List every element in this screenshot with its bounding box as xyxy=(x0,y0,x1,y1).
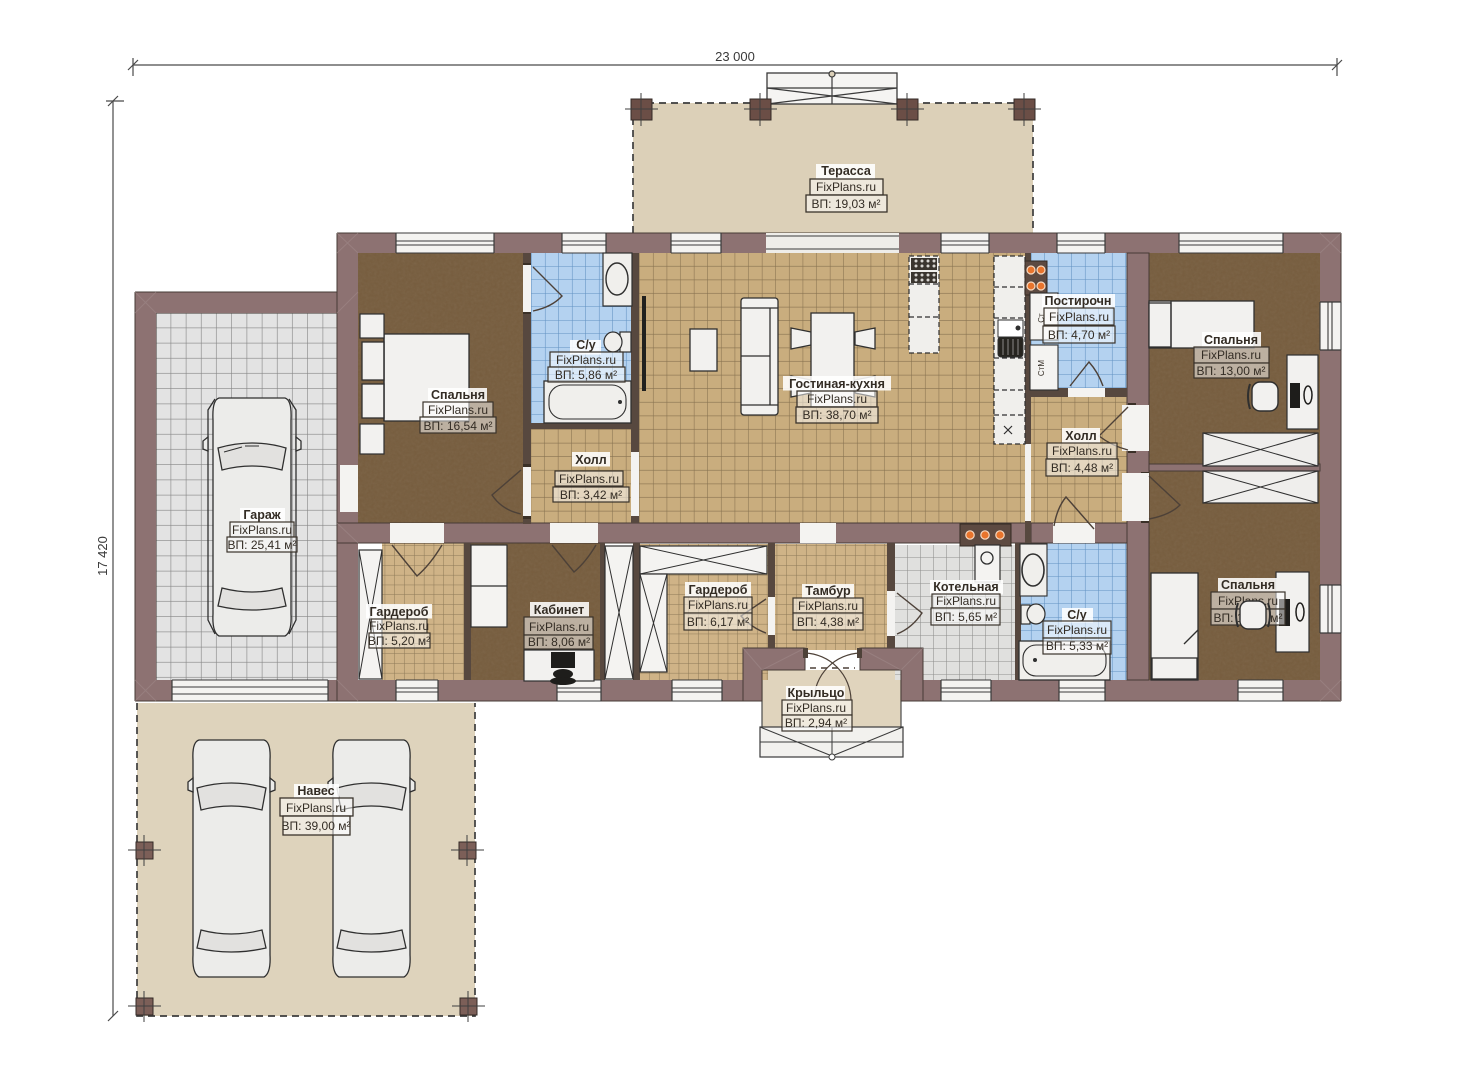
svg-text:ВП: 4,70 м²: ВП: 4,70 м² xyxy=(1048,328,1110,342)
svg-text:ВП: 38,70 м²: ВП: 38,70 м² xyxy=(803,408,872,422)
svg-text:ВП: 5,33 м²: ВП: 5,33 м² xyxy=(1046,639,1108,653)
svg-text:17 420: 17 420 xyxy=(95,536,110,576)
svg-text:ВП: 2,94 м²: ВП: 2,94 м² xyxy=(785,716,847,730)
svg-text:ВП: 8,06 м²: ВП: 8,06 м² xyxy=(528,635,590,649)
svg-text:С/у: С/у xyxy=(1067,608,1087,622)
svg-text:FixPlans.ru: FixPlans.ru xyxy=(807,392,867,406)
svg-text:Гараж: Гараж xyxy=(243,508,280,522)
svg-text:FixPlans.ru: FixPlans.ru xyxy=(556,353,616,367)
svg-text:FixPlans.ru: FixPlans.ru xyxy=(286,801,346,815)
svg-text:ВП: 3,42 м²: ВП: 3,42 м² xyxy=(560,488,622,502)
svg-text:Терасса: Терасса xyxy=(821,164,872,178)
svg-text:FixPlans.ru: FixPlans.ru xyxy=(786,701,846,715)
svg-text:FixPlans.ru: FixPlans.ru xyxy=(1047,623,1107,637)
svg-text:FixPlans.ru: FixPlans.ru xyxy=(1201,348,1261,362)
svg-text:Постирочн: Постирочн xyxy=(1045,294,1112,308)
svg-text:Тамбур: Тамбур xyxy=(805,584,851,598)
svg-text:Гардероб: Гардероб xyxy=(688,583,747,597)
svg-text:Кабинет: Кабинет xyxy=(534,603,585,617)
svg-text:FixPlans.ru: FixPlans.ru xyxy=(428,403,488,417)
svg-text:ВП: 5,20 м²: ВП: 5,20 м² xyxy=(368,634,430,648)
svg-text:ВП: 5,65 м²: ВП: 5,65 м² xyxy=(935,610,997,624)
svg-text:FixPlans.ru: FixPlans.ru xyxy=(816,180,876,194)
svg-text:FixPlans.ru: FixPlans.ru xyxy=(232,523,292,537)
svg-text:ВП: 4,48 м²: ВП: 4,48 м² xyxy=(1051,461,1113,475)
svg-text:FixPlans.ru: FixPlans.ru xyxy=(688,598,748,612)
svg-text:Гостиная-кухня: Гостиная-кухня xyxy=(789,377,885,391)
svg-text:FixPlans.ru: FixPlans.ru xyxy=(559,472,619,486)
svg-text:ВП: 19,03 м²: ВП: 19,03 м² xyxy=(812,197,881,211)
svg-text:FixPlans.ru: FixPlans.ru xyxy=(936,594,996,608)
svg-text:23 000: 23 000 xyxy=(715,49,755,64)
svg-text:FixPlans.ru: FixPlans.ru xyxy=(529,620,589,634)
svg-text:СтМ: СтМ xyxy=(1037,360,1046,376)
svg-text:ВП: 4,38 м²: ВП: 4,38 м² xyxy=(797,615,859,629)
svg-text:FixPlans.ru: FixPlans.ru xyxy=(1052,444,1112,458)
svg-text:Спальня: Спальня xyxy=(1221,578,1275,592)
svg-text:Гардероб: Гардероб xyxy=(369,605,428,619)
svg-text:ВП: 6,17 м²: ВП: 6,17 м² xyxy=(687,615,749,629)
svg-text:Навес: Навес xyxy=(297,784,334,798)
svg-text:Спальня: Спальня xyxy=(431,388,485,402)
svg-text:Котельная: Котельная xyxy=(933,580,998,594)
svg-text:ВП: 5,86 м²: ВП: 5,86 м² xyxy=(555,368,617,382)
svg-text:Холл: Холл xyxy=(575,453,606,467)
svg-text:FixPlans.ru: FixPlans.ru xyxy=(369,619,429,633)
svg-text:Холл: Холл xyxy=(1065,429,1096,443)
svg-text:ВП: 13,00 м²: ВП: 13,00 м² xyxy=(1197,364,1266,378)
svg-text:Крыльцо: Крыльцо xyxy=(788,686,845,700)
svg-text:FixPlans.ru: FixPlans.ru xyxy=(1049,310,1109,324)
svg-text:FixPlans.ru: FixPlans.ru xyxy=(798,599,858,613)
svg-text:Спальня: Спальня xyxy=(1204,333,1258,347)
svg-text:С/у: С/у xyxy=(576,338,596,352)
svg-text:ВП: 25,41 м²: ВП: 25,41 м² xyxy=(228,538,297,552)
svg-text:ВП: 16,54 м²: ВП: 16,54 м² xyxy=(424,419,493,433)
svg-text:ВП: 39,00 м²: ВП: 39,00 м² xyxy=(282,819,351,833)
